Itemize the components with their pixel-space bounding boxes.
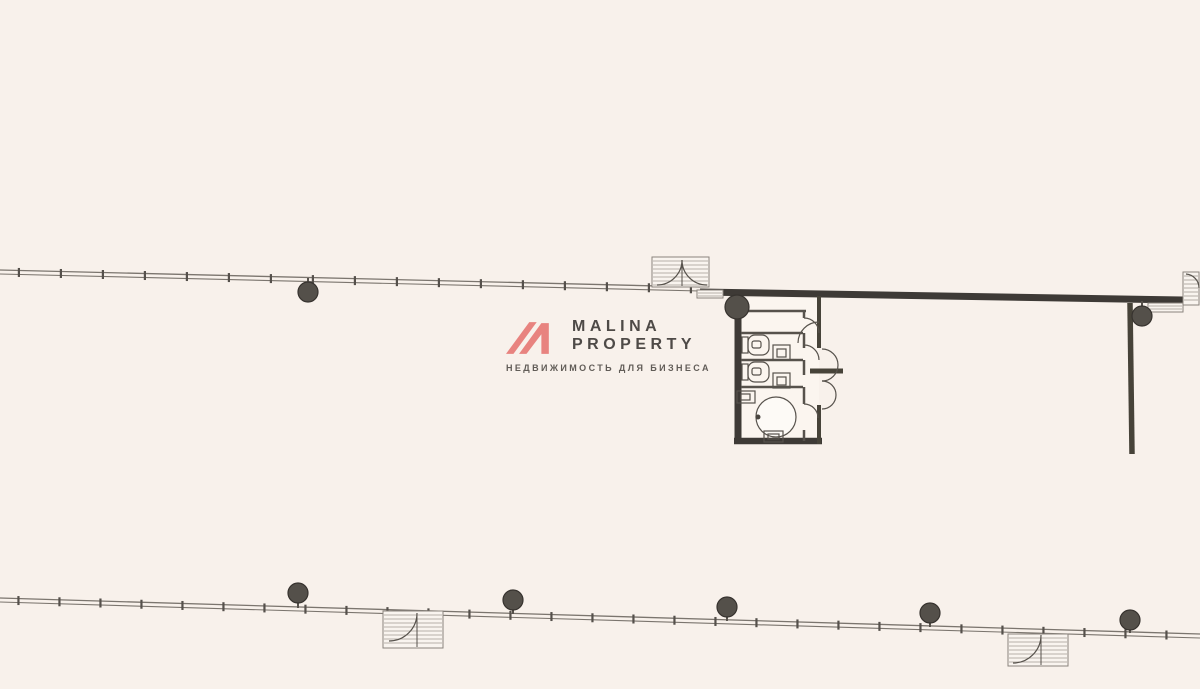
logo-title-line1: MALINA (572, 318, 696, 336)
column-top-1 (298, 282, 318, 302)
column-bottom-4 (920, 603, 940, 623)
curtain-wall-top-outer (0, 270, 700, 287)
curtain-wall-bottom-inner (0, 602, 1200, 638)
curtain-wall-bottom (0, 596, 1200, 639)
entrance-vestibule-bottom-right (1008, 634, 1068, 666)
window-hatch-right (1148, 303, 1183, 312)
round-fixture-drain (756, 415, 761, 420)
column-bottom-5 (1120, 610, 1140, 630)
logo-subtitle: НЕДВИЖИМОСТЬ ДЛЯ БИЗНЕСА (506, 363, 711, 373)
curtain-wall-top (0, 268, 700, 293)
column-top-2 (725, 295, 749, 319)
outer-door-arc-upper (822, 349, 838, 381)
logo-titles: MALINA PROPERTY (572, 316, 696, 353)
entrance-vestibule-top (652, 257, 709, 287)
door-box-right-edge (1183, 272, 1199, 305)
window-hatch-right-frame (1148, 303, 1183, 312)
outer-door-arc-lower (822, 381, 836, 409)
logo-row: MALINA PROPERTY (506, 316, 711, 356)
column-bottom-1 (288, 583, 308, 603)
column-bottom-3 (717, 597, 737, 617)
malina-logo-mark-icon (506, 320, 560, 356)
curtain-wall-bottom-outer (0, 598, 1200, 634)
entrance-vestibule-bottom-left (383, 611, 443, 648)
logo-title-line2: PROPERTY (572, 336, 696, 354)
window-hatch-left (697, 290, 723, 298)
logo: MALINA PROPERTY НЕДВИЖИМОСТЬ ДЛЯ БИЗНЕСА (506, 316, 711, 373)
column-bottom-2 (503, 590, 523, 610)
curtain-wall-top-inner (0, 274, 700, 291)
window-hatch-left-frame (697, 290, 723, 298)
entrance-vestibule-top-frame (652, 257, 709, 287)
entrance-vestibule-bottom-left-frame (383, 611, 443, 648)
partition-wall-right (1130, 303, 1132, 454)
column-top-3 (1132, 306, 1152, 326)
